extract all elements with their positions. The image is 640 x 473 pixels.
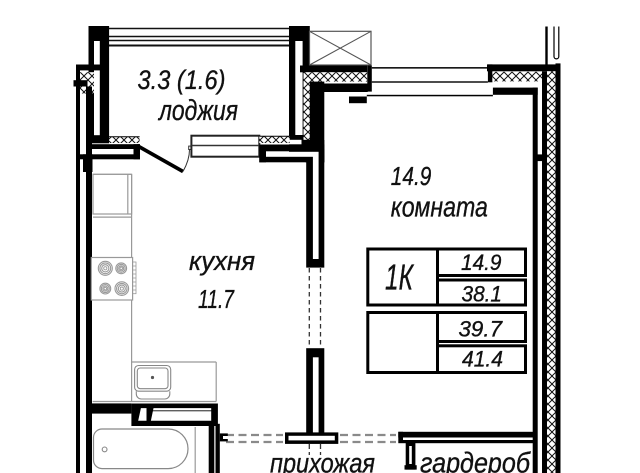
svg-text:38.1: 38.1 — [462, 282, 503, 307]
svg-text:1К: 1К — [385, 257, 414, 298]
svg-text:14.9: 14.9 — [391, 163, 432, 191]
svg-text:кухня: кухня — [189, 246, 255, 276]
svg-text:гардероб: гардероб — [420, 448, 531, 473]
svg-text:41.4: 41.4 — [462, 347, 503, 372]
svg-text:лоджия: лоджия — [157, 95, 238, 127]
svg-text:комната: комната — [391, 192, 488, 224]
svg-text:3.3 (1.6): 3.3 (1.6) — [138, 65, 226, 95]
svg-text:прихожая: прихожая — [270, 448, 375, 473]
svg-text:39.7: 39.7 — [459, 317, 503, 342]
svg-text:14.9: 14.9 — [461, 250, 502, 275]
svg-text:11.7: 11.7 — [198, 284, 235, 314]
